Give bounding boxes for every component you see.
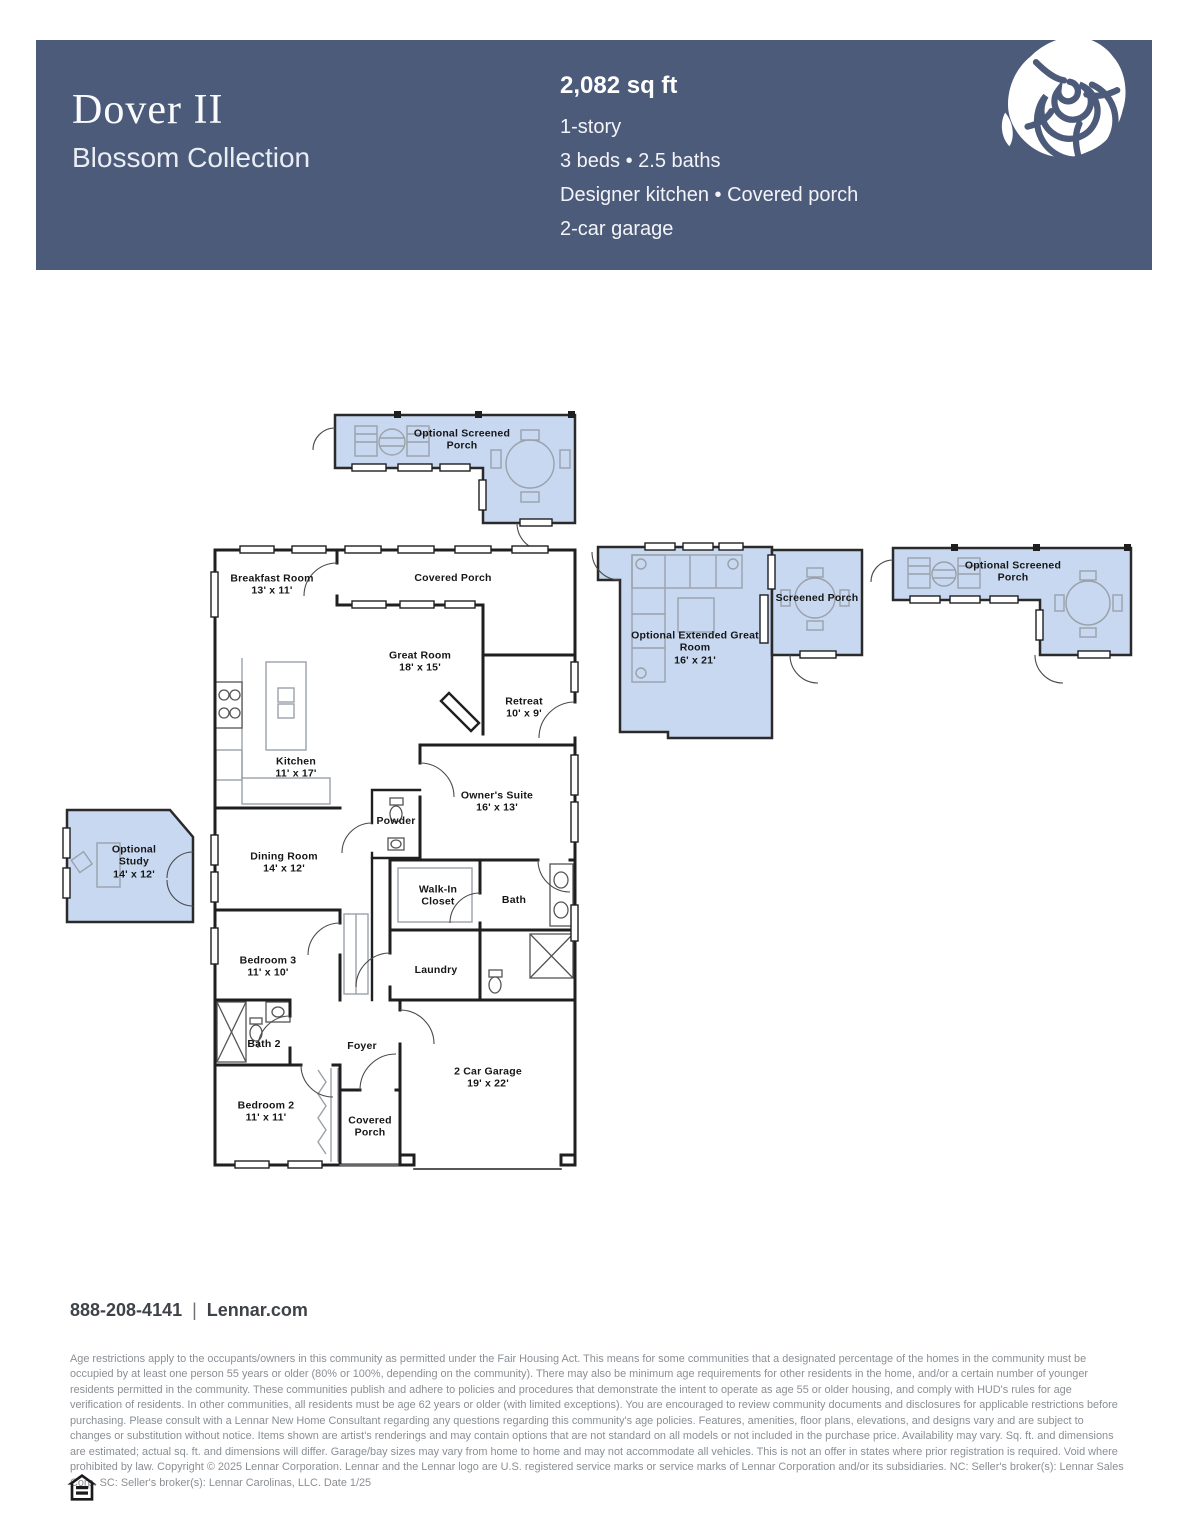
spec-stories: 1-story [560, 116, 858, 139]
collection-subtitle: Blossom Collection [72, 142, 310, 174]
room-label-bedroom-2: Bedroom 211' x 11' [238, 1100, 295, 1125]
room-label-2-car-garage: 2 Car Garage19' x 22' [454, 1066, 522, 1091]
separator: | [192, 1300, 197, 1320]
room-label-foyer: Foyer [347, 1040, 377, 1052]
room-label-dining-room: Dining Room14' x 12' [250, 851, 318, 876]
room-label-optional-screened-porch-right: Optional Screened Porch [958, 560, 1068, 585]
room-label-covered-porch-top: Covered Porch [414, 572, 491, 584]
room-label-bath: Bath [502, 894, 526, 906]
room-label-optional-study: Optional Study14' x 12' [102, 843, 166, 880]
room-label-powder: Powder [376, 815, 415, 827]
room-label-retreat: Retreat10' x 9' [505, 696, 543, 721]
spec-garage: 2-car garage [560, 218, 858, 241]
room-label-covered-porch-bottom: Covered Porch [341, 1115, 399, 1140]
room-label-kitchen: Kitchen11' x 17' [275, 756, 316, 781]
spec-features: Designer kitchen • Covered porch [560, 184, 858, 207]
room-label-screened-porch: Screened Porch [776, 592, 859, 604]
room-label-laundry: Laundry [415, 964, 458, 976]
room-label-bath-2: Bath 2 [247, 1038, 280, 1050]
floor-plan: Optional Screened Porch Breakfast Room13… [0, 400, 1187, 1240]
room-label-optional-extended-great-room: Optional Extended Great Room16' x 21' [620, 629, 770, 666]
room-label-bedroom-3: Bedroom 311' x 10' [240, 955, 297, 980]
header-banner: Dover II Blossom Collection 2,082 sq ft … [36, 40, 1152, 270]
room-label-walk-in-closet: Walk-In Closet [409, 884, 467, 909]
room-label-great-room: Great Room18' x 15' [389, 650, 451, 675]
legal-disclaimer: Age restrictions apply to the occupants/… [70, 1352, 1126, 1491]
floor-plan-drawing [0, 400, 1187, 1240]
spec-list: 2,082 sq ft 1-story 3 beds • 2.5 baths D… [560, 72, 858, 252]
room-label-breakfast-room: Breakfast Room13' x 11' [230, 573, 313, 598]
lennar-rose-icon [994, 34, 1134, 180]
phone-number: 888-208-4141 [70, 1300, 182, 1320]
room-label-owners-suite: Owner's Suite16' x 13' [461, 790, 533, 815]
contact-row: 888-208-4141|Lennar.com [70, 1300, 308, 1321]
spec-beds-baths: 3 beds • 2.5 baths [560, 150, 858, 173]
website-link[interactable]: Lennar.com [207, 1300, 308, 1320]
equal-housing-icon [66, 1472, 98, 1504]
sqft-value: 2,082 sq ft [560, 72, 858, 100]
room-label-optional-screened-porch-top: Optional Screened Porch [407, 428, 517, 453]
page-title: Dover II [72, 86, 223, 134]
